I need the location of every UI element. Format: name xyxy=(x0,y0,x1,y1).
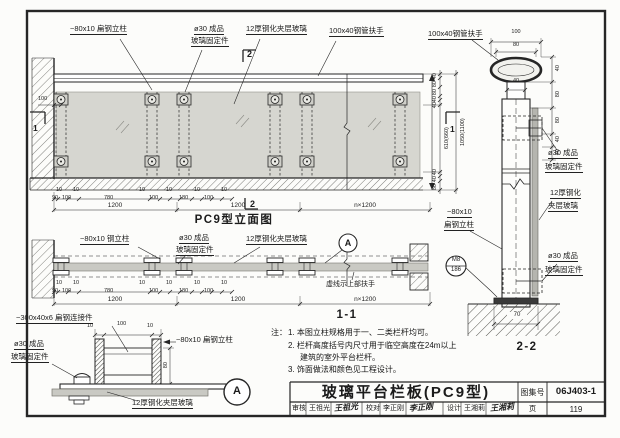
dim-span: n×1200 xyxy=(346,202,384,209)
dim: 10 xyxy=(221,187,227,193)
end-return xyxy=(410,244,428,261)
dim: 10 xyxy=(139,280,145,286)
da-post-label: −80x10 扁钢立柱 xyxy=(176,336,233,345)
dim: 10 xyxy=(139,187,145,193)
da-glass-label: 12厚钢化夹层玻璃 xyxy=(132,399,193,409)
s22-fixing-lower-1: ø30 成品 xyxy=(548,252,578,262)
atlas-no-label: 图集号 xyxy=(519,388,546,397)
dim: 100 xyxy=(149,195,158,201)
dim: 100 xyxy=(62,288,71,294)
dim-span: 1200 xyxy=(223,296,253,303)
section-2-2-title: 2-2 xyxy=(504,341,550,354)
elev-glass-label: 12厚钢化夹层玻璃 xyxy=(246,25,307,35)
note-line-1: 1. 本图立柱规格用于一、二类栏杆均可。 xyxy=(288,328,433,337)
dim: 10 xyxy=(87,323,93,329)
s22-glass-label-1: 12厚钢化 xyxy=(550,189,581,199)
section-1-1-title: 1-1 xyxy=(325,309,369,322)
page-number: 119 xyxy=(548,405,604,414)
connector-plate xyxy=(104,348,152,375)
glass-section xyxy=(52,389,208,396)
checker-name: 李正刚 xyxy=(383,405,404,413)
note-line-3: 建筑的室外平台栏杆。 xyxy=(300,353,380,362)
vdim: 40 xyxy=(555,61,561,75)
dim: 100 xyxy=(62,195,71,201)
dim: 180 xyxy=(179,288,188,294)
dim: 10 xyxy=(221,280,227,286)
s11-fixing-label-2: 玻璃固定件 xyxy=(176,246,214,256)
dim: 10 xyxy=(194,280,200,286)
s22-handrail-label: 100x40钢管扶手 xyxy=(428,30,483,40)
elev-handrail-label: 100x40钢管扶手 xyxy=(329,27,384,37)
s11-dashed-note: 虚线示上部扶手 xyxy=(326,281,375,289)
dim: 10 xyxy=(56,280,62,286)
dim: 10 xyxy=(73,187,79,193)
elevation-title: PC9型立面图 xyxy=(188,214,280,227)
vdim: 80 xyxy=(555,113,561,127)
ref-bubble-bottom: 186 xyxy=(448,267,464,274)
check-label: 校对 xyxy=(366,405,380,413)
atlas-no: 06J403-1 xyxy=(548,387,604,398)
dim: 80 xyxy=(508,42,524,48)
vdim: 40 xyxy=(555,132,561,146)
section-1-mark-left: 1 xyxy=(33,124,38,134)
vdim: 80 xyxy=(432,180,438,194)
dim: 100 xyxy=(508,29,524,35)
sheet-title: 玻璃平台栏板(PC9型) xyxy=(300,384,512,401)
da-connector-label: −300x40x6 扁钢连接件 xyxy=(16,314,93,324)
s22-fixing-lower-2: 玻璃固定件 xyxy=(545,266,583,276)
dim: 90 xyxy=(52,288,58,294)
wall-hatch xyxy=(32,58,54,179)
da-fixing-label-2: 玻璃固定件 xyxy=(11,353,49,363)
flat-bar-section xyxy=(95,339,104,384)
designer-name: 王湘莉 xyxy=(464,405,485,413)
s22-post-label-1: −80x10 xyxy=(447,208,472,218)
s22-post-label-2: 扁钢立柱 xyxy=(444,221,474,231)
da-side-dim: 80 xyxy=(163,357,169,373)
dim: 90 xyxy=(52,195,58,201)
vdim-total: 1050(1100) xyxy=(460,109,466,155)
elev-fixing-label-1: ø30 成品 xyxy=(194,25,224,35)
note-line-2: 2. 栏杆高度括号内尺寸用于临空高度在24m以上 xyxy=(288,341,456,350)
elev-post-label: −80x10 扁钢立柱 xyxy=(70,25,127,35)
s22-fixing-upper-2: 玻璃固定件 xyxy=(545,163,583,173)
dim-span: 1200 xyxy=(100,202,130,209)
dim: 100 xyxy=(149,288,158,294)
dim: 100 xyxy=(117,321,126,327)
detail-a-mark: A xyxy=(231,385,243,398)
review-label: 审核 xyxy=(292,405,306,413)
anchor-plate xyxy=(494,298,538,304)
elevation-linework xyxy=(30,39,460,212)
ref-bubble-top: M8 xyxy=(449,257,463,264)
reviewer-name: 王祖光 xyxy=(309,405,330,413)
dim-span: n×1200 xyxy=(346,296,384,303)
s11-fixing-label-1: ø30 成品 xyxy=(179,234,209,244)
vdim-mid: 610(660) xyxy=(444,121,450,155)
dim: 10 xyxy=(166,187,172,193)
da-fixing-label-1: ø30 成品 xyxy=(14,340,44,350)
s22-fixing-upper-1: ø30 成品 xyxy=(548,149,578,159)
notes-label: 注： xyxy=(271,328,287,337)
dim: 10 xyxy=(73,280,79,286)
section-2-mark-top: 2 xyxy=(247,49,252,59)
dim: 780 xyxy=(104,195,113,201)
elev-wall-dim: 100 xyxy=(38,96,47,102)
note-line-4: 3. 饰面做法和颜色见工程设计。 xyxy=(288,365,401,374)
design-label: 设计 xyxy=(447,405,461,413)
dim-span: 1200 xyxy=(100,296,130,303)
dim: 10 xyxy=(166,280,172,286)
detail-a-ref: A xyxy=(343,238,353,248)
s11-post-label: −80x10 钢立柱 xyxy=(80,235,129,245)
glass-fixing-dome xyxy=(74,374,90,378)
vdim: 40 xyxy=(432,98,438,112)
s22-glass-label-2: 夹层玻璃 xyxy=(548,202,578,212)
s11-glass-label: 12厚钢化夹层玻璃 xyxy=(246,235,307,245)
dim: 10 xyxy=(194,187,200,193)
drawing-sheet: −80x10 扁钢立柱 ø30 成品 玻璃固定件 12厚钢化夹层玻璃 100x4… xyxy=(0,0,620,438)
dim: 100 xyxy=(204,288,213,294)
page-label: 页 xyxy=(519,405,546,414)
dim: 180 xyxy=(179,195,188,201)
handrail xyxy=(54,74,423,82)
dim: 780 xyxy=(104,288,113,294)
dim: 40 xyxy=(508,78,524,84)
vdim: 80 xyxy=(555,87,561,101)
glass-panel xyxy=(56,92,420,178)
dim: 10 xyxy=(56,187,62,193)
s22-base-dim: 70 xyxy=(507,312,527,319)
base-plate xyxy=(60,384,232,389)
dim-span: 1200 xyxy=(223,202,253,209)
elev-fixing-label-2: 玻璃固定件 xyxy=(191,37,229,47)
dim: 100 xyxy=(204,195,213,201)
section-2-2-linework xyxy=(446,38,560,336)
section-1-mark-right: 1 xyxy=(450,125,455,135)
concrete-hatch xyxy=(468,304,560,336)
dim: 10 xyxy=(147,323,153,329)
glass-plan xyxy=(54,263,428,271)
